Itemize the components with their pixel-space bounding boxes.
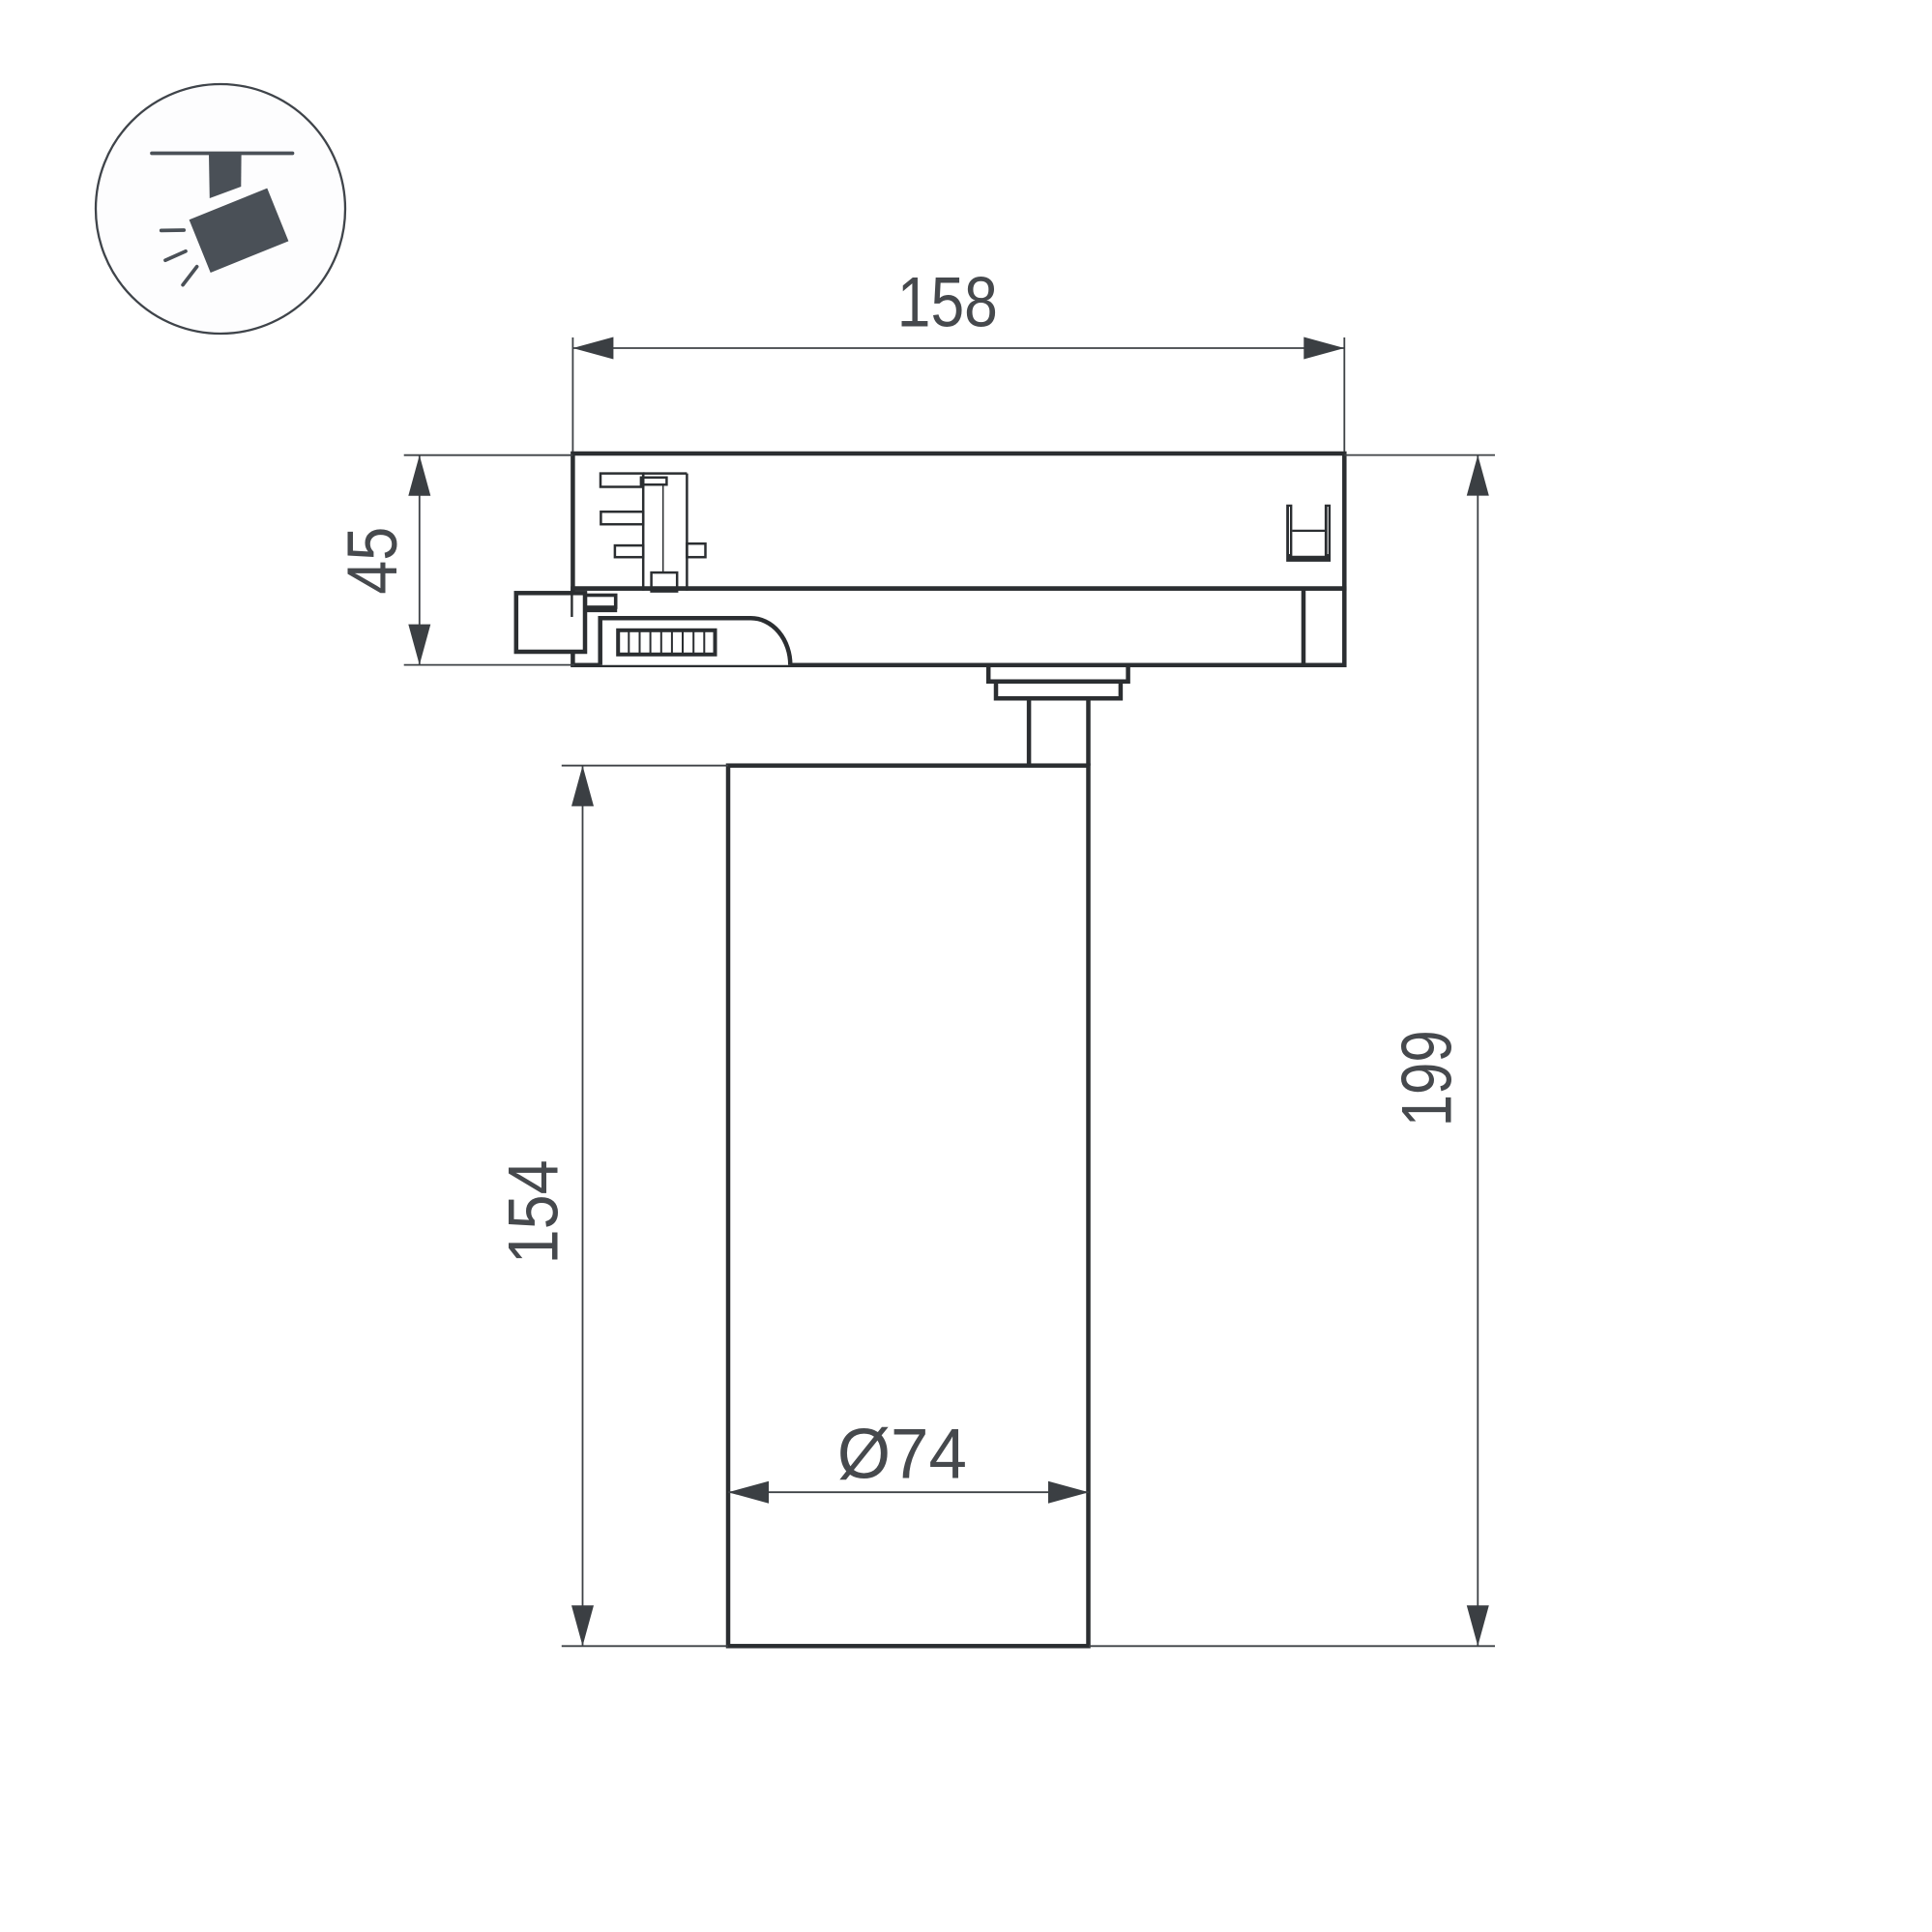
svg-text:Ø74: Ø74 — [837, 1416, 967, 1494]
svg-text:199: 199 — [1388, 1030, 1466, 1127]
svg-text:45: 45 — [334, 527, 412, 595]
svg-text:154: 154 — [495, 1159, 573, 1264]
svg-text:158: 158 — [897, 263, 998, 341]
